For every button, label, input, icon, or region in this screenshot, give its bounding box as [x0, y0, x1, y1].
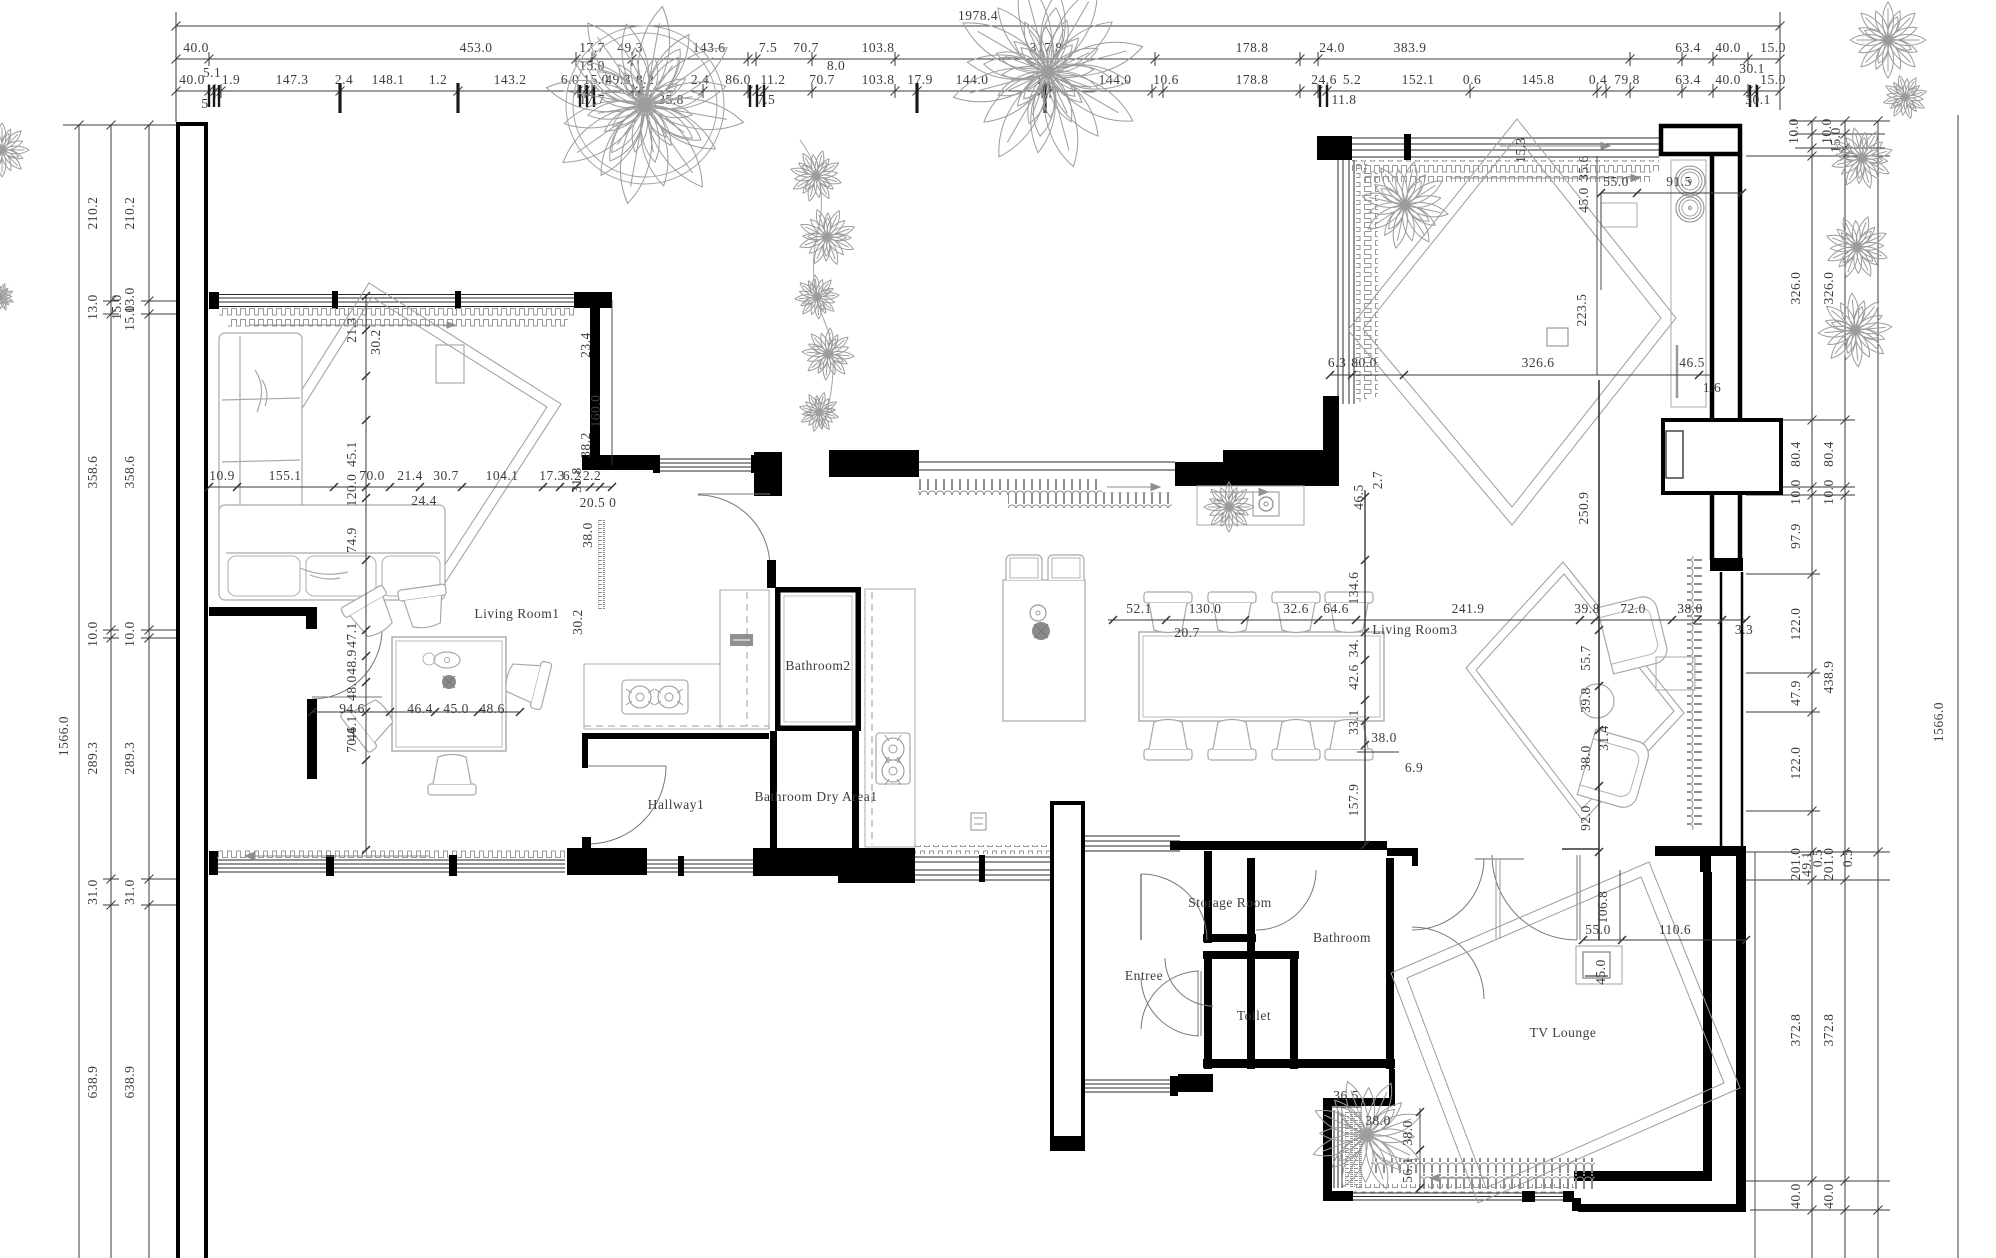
- svg-text:46.5: 46.5: [1679, 355, 1705, 370]
- svg-text:120.0: 120.0: [344, 474, 359, 507]
- svg-text:80.4: 80.4: [1821, 441, 1836, 467]
- svg-text:30.2: 30.2: [570, 609, 585, 635]
- svg-text:7.5: 7.5: [759, 40, 777, 55]
- svg-text:6.9: 6.9: [1405, 760, 1423, 775]
- svg-text:223.5: 223.5: [1574, 294, 1589, 327]
- svg-text:144.0: 144.0: [956, 72, 989, 87]
- svg-text:372.8: 372.8: [1788, 1014, 1803, 1047]
- svg-text:24.4: 24.4: [411, 493, 437, 508]
- svg-text:21.4: 21.4: [397, 468, 423, 483]
- svg-text:38.0: 38.0: [1371, 730, 1397, 745]
- svg-text:110.6: 110.6: [1659, 922, 1691, 937]
- svg-text:42.6: 42.6: [1346, 664, 1361, 690]
- svg-text:438.9: 438.9: [1821, 661, 1836, 694]
- svg-text:453.0: 453.0: [460, 40, 493, 55]
- svg-text:10.0: 10.0: [122, 621, 137, 647]
- svg-text:38.0: 38.0: [1677, 601, 1703, 616]
- svg-text:5.2: 5.2: [1343, 72, 1361, 87]
- svg-text:TV Lounge: TV Lounge: [1530, 1025, 1597, 1040]
- svg-text:15.3: 15.3: [1513, 137, 1528, 163]
- svg-text:372.8: 372.8: [1821, 1014, 1836, 1047]
- svg-text:38.0: 38.0: [580, 522, 595, 548]
- svg-text:326.0: 326.0: [1821, 272, 1836, 305]
- svg-text:48.0: 48.0: [344, 675, 359, 701]
- svg-text:130.0: 130.0: [1189, 601, 1222, 616]
- svg-text:31.0: 31.0: [85, 879, 100, 905]
- svg-text:91.5: 91.5: [1666, 174, 1692, 189]
- svg-text:31.4: 31.4: [1596, 725, 1611, 751]
- svg-text:86.0: 86.0: [725, 72, 751, 87]
- svg-text:55.0: 55.0: [1603, 174, 1629, 189]
- svg-text:10.0: 10.0: [85, 621, 100, 647]
- svg-text:45.1: 45.1: [344, 441, 359, 467]
- svg-text:45.0: 45.0: [1576, 187, 1591, 213]
- svg-text:15.0: 15.0: [1760, 72, 1786, 87]
- svg-text:80.0: 80.0: [1351, 355, 1377, 370]
- svg-text:24.0: 24.0: [1319, 40, 1345, 55]
- svg-text:Storage Room: Storage Room: [1188, 895, 1272, 910]
- svg-text:11.8: 11.8: [1331, 92, 1356, 107]
- svg-text:55.7: 55.7: [1578, 645, 1593, 671]
- svg-text:55.0: 55.0: [1585, 922, 1611, 937]
- svg-text:0.6: 0.6: [1463, 72, 1481, 87]
- svg-text:145.8: 145.8: [1522, 72, 1555, 87]
- svg-text:5: 5: [201, 96, 208, 111]
- svg-text:39.8: 39.8: [1574, 601, 1600, 616]
- svg-text:250.9: 250.9: [1576, 492, 1591, 525]
- svg-text:24.6: 24.6: [1311, 72, 1337, 87]
- svg-text:7.5: 7.5: [757, 92, 775, 107]
- svg-text:106.8: 106.8: [1595, 891, 1610, 924]
- svg-text:10.0: 10.0: [1786, 118, 1801, 144]
- svg-text:39.8: 39.8: [1578, 687, 1593, 713]
- svg-text:143.6: 143.6: [693, 40, 726, 55]
- svg-text:638.9: 638.9: [122, 1066, 137, 1099]
- svg-text:289.3: 289.3: [122, 742, 137, 775]
- svg-text:56.1: 56.1: [1400, 1157, 1415, 1183]
- svg-text:358.6: 358.6: [85, 456, 100, 489]
- svg-text:147.3: 147.3: [276, 72, 309, 87]
- svg-text:1978.4: 1978.4: [958, 8, 998, 23]
- svg-text:31.8: 31.8: [569, 467, 584, 493]
- svg-text:10.6: 10.6: [1153, 72, 1179, 87]
- svg-text:38.2: 38.2: [578, 432, 593, 458]
- svg-text:40.0: 40.0: [183, 40, 209, 55]
- svg-text:30.2: 30.2: [368, 329, 383, 355]
- svg-text:Bathroom2: Bathroom2: [785, 658, 850, 673]
- svg-text:210.2: 210.2: [85, 197, 100, 230]
- svg-text:46.5: 46.5: [1351, 484, 1366, 510]
- svg-text:383.9: 383.9: [1394, 40, 1427, 55]
- svg-text:74.9: 74.9: [344, 527, 359, 553]
- svg-text:79.8: 79.8: [1614, 72, 1640, 87]
- svg-text:36.5: 36.5: [1333, 1088, 1359, 1103]
- svg-text:21.3: 21.3: [344, 317, 359, 343]
- svg-text:241.9: 241.9: [1452, 601, 1485, 616]
- svg-text:6.3: 6.3: [1328, 355, 1346, 370]
- svg-text:134.6: 134.6: [1346, 572, 1361, 605]
- svg-text:326.6: 326.6: [1522, 355, 1555, 370]
- svg-text:144.0: 144.0: [1099, 72, 1132, 87]
- svg-text:8.0: 8.0: [827, 58, 845, 73]
- svg-text:104.1: 104.1: [486, 468, 519, 483]
- svg-text:20.7: 20.7: [1174, 625, 1200, 640]
- svg-text:152.1: 152.1: [1402, 72, 1435, 87]
- svg-text:2.4: 2.4: [335, 72, 353, 87]
- svg-text:40.0: 40.0: [1715, 72, 1741, 87]
- svg-text:48.9: 48.9: [344, 649, 359, 675]
- svg-text:64.6: 64.6: [1323, 601, 1349, 616]
- svg-text:1.9: 1.9: [222, 72, 240, 87]
- svg-text:178.8: 178.8: [1236, 72, 1269, 87]
- svg-text:23.4: 23.4: [578, 332, 593, 358]
- svg-text:143.2: 143.2: [494, 72, 527, 87]
- svg-text:45.0: 45.0: [443, 701, 469, 716]
- svg-text:Entree: Entree: [1125, 968, 1163, 983]
- svg-text:70.0: 70.0: [359, 468, 385, 483]
- svg-text:46.4: 46.4: [407, 701, 433, 716]
- svg-text:1.6: 1.6: [1703, 380, 1721, 395]
- svg-text:178.8: 178.8: [1236, 40, 1269, 55]
- svg-text:358.6: 358.6: [122, 456, 137, 489]
- svg-text:63.4: 63.4: [1675, 72, 1701, 87]
- svg-text:40.0: 40.0: [1821, 1183, 1836, 1209]
- svg-text:3.3: 3.3: [1735, 622, 1753, 637]
- svg-text:10.0: 10.0: [1788, 479, 1803, 505]
- svg-text:97.9: 97.9: [1788, 523, 1803, 549]
- svg-text:15.0: 15.0: [109, 294, 124, 320]
- svg-text:103.8: 103.8: [862, 40, 895, 55]
- svg-text:40.0: 40.0: [1788, 1183, 1803, 1209]
- svg-text:80.4: 80.4: [1788, 441, 1803, 467]
- svg-text:122.0: 122.0: [1788, 747, 1803, 780]
- svg-text:Hallway1: Hallway1: [648, 797, 704, 812]
- svg-text:35.6: 35.6: [1576, 155, 1591, 181]
- svg-text:148.1: 148.1: [372, 72, 405, 87]
- svg-text:70.7: 70.7: [793, 40, 819, 55]
- svg-text:72.0: 72.0: [1620, 601, 1646, 616]
- svg-text:30.1: 30.1: [1745, 92, 1771, 107]
- svg-text:40.0: 40.0: [179, 72, 205, 87]
- svg-text:2.4: 2.4: [691, 72, 709, 87]
- svg-text:2.2: 2.2: [583, 468, 601, 483]
- svg-text:1566.0: 1566.0: [56, 716, 71, 756]
- svg-text:326.0: 326.0: [1788, 272, 1803, 305]
- svg-text:15.0: 15.0: [1828, 127, 1843, 153]
- svg-text:1566.0: 1566.0: [1931, 702, 1946, 742]
- svg-text:46.1: 46.1: [344, 715, 359, 741]
- svg-text:15.0: 15.0: [1760, 40, 1786, 55]
- svg-text:210.2: 210.2: [122, 197, 137, 230]
- svg-text:15.0: 15.0: [122, 305, 137, 331]
- svg-text:2.7: 2.7: [1370, 471, 1385, 489]
- svg-text:1.2: 1.2: [429, 72, 447, 87]
- svg-text:20.5 0: 20.5 0: [580, 495, 617, 510]
- svg-text:30.7: 30.7: [433, 468, 459, 483]
- svg-text:32.6: 32.6: [1283, 601, 1309, 616]
- svg-text:47.1: 47.1: [344, 622, 359, 648]
- svg-text:94.6: 94.6: [339, 701, 365, 716]
- svg-text:638.9: 638.9: [85, 1066, 100, 1099]
- svg-text:45.0: 45.0: [1593, 959, 1608, 985]
- svg-text:289.3: 289.3: [85, 742, 100, 775]
- svg-text:38.0: 38.0: [1400, 1120, 1415, 1146]
- svg-text:48.6: 48.6: [479, 701, 505, 716]
- svg-text:5.1: 5.1: [203, 65, 221, 80]
- svg-text:13.0: 13.0: [85, 294, 100, 320]
- svg-text:63.4: 63.4: [1675, 40, 1701, 55]
- svg-text:Bathroom: Bathroom: [1313, 930, 1371, 945]
- svg-text:155.1: 155.1: [269, 468, 302, 483]
- svg-text:Living Room3: Living Room3: [1372, 622, 1457, 637]
- svg-text:Living Room1: Living Room1: [474, 606, 559, 621]
- svg-text:40.0: 40.0: [1715, 40, 1741, 55]
- svg-text:122.0: 122.0: [1788, 608, 1803, 641]
- svg-text:0.4: 0.4: [1589, 72, 1607, 87]
- svg-text:Toilet: Toilet: [1237, 1008, 1271, 1023]
- svg-text:160.0: 160.0: [588, 395, 603, 428]
- svg-text:157.9: 157.9: [1346, 784, 1361, 817]
- svg-text:33.1: 33.1: [1346, 709, 1361, 735]
- svg-text:Bathroom Dry Area1: Bathroom Dry Area1: [755, 789, 878, 804]
- svg-text:70.7: 70.7: [809, 72, 835, 87]
- svg-text:47.9: 47.9: [1788, 680, 1803, 706]
- svg-text:17.9: 17.9: [907, 72, 933, 87]
- svg-text:34.: 34.: [1346, 639, 1361, 657]
- svg-text:17.3: 17.3: [539, 468, 565, 483]
- svg-text:52.1: 52.1: [1126, 601, 1152, 616]
- svg-text:38.0: 38.0: [1365, 1113, 1391, 1128]
- svg-text:92.0: 92.0: [1578, 805, 1593, 831]
- svg-text:103.8: 103.8: [862, 72, 895, 87]
- svg-text:10.9: 10.9: [209, 468, 235, 483]
- svg-text:10.0: 10.0: [1821, 479, 1836, 505]
- svg-text:31.0: 31.0: [122, 879, 137, 905]
- svg-text:38.0: 38.0: [1578, 745, 1593, 771]
